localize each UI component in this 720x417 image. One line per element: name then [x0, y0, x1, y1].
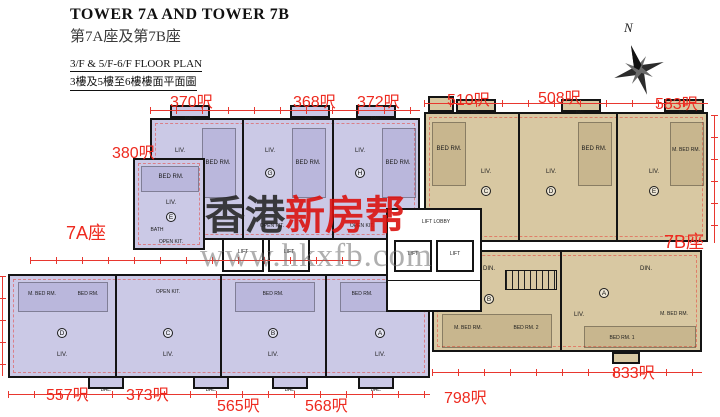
room-label-bed1: BED RM. 1 [609, 336, 634, 341]
tower-label-7a: 7A座 [66, 219, 106, 245]
area-label-368: 368呎 [293, 88, 336, 112]
bedroom-zone [584, 326, 696, 348]
lift-lobby-label: LIFT LOBBY [422, 220, 450, 225]
room-label-liv: LIV. [355, 148, 365, 154]
area-label-568: 568呎 [305, 392, 348, 416]
area-label-370: 370呎 [170, 88, 213, 112]
room-label-bed: BED RM. [205, 160, 230, 166]
unit-divider [560, 252, 562, 350]
balcony: BAL. [193, 376, 229, 389]
room-label-bath: BATH [151, 228, 164, 233]
unit-letter: C [481, 186, 491, 196]
unit-divider [616, 114, 618, 240]
unit-divider [325, 276, 327, 376]
room-label-din: DIN. [483, 266, 495, 272]
room-label-bal: BAL. [185, 116, 196, 122]
unit-divider [115, 276, 117, 376]
floor-plan-page: TOWER 7A AND TOWER 7B 第7A座及第7B座 3/F & 5/… [0, 0, 720, 417]
dimension-line [432, 372, 702, 373]
area-label-510: 510呎 [447, 86, 490, 110]
room-label-liv: LIV. [574, 312, 584, 318]
room-label-liv: LIV. [375, 352, 385, 358]
unit-letter: B [484, 294, 494, 304]
unit-letter: G [265, 168, 275, 178]
area-label-508: 508呎 [538, 84, 581, 108]
unit-letter: E [649, 186, 659, 196]
watermark-url: www.hkxfb.com [200, 238, 433, 275]
room-label-mbed: M. BED RM. [672, 148, 700, 153]
room-label-liv: LIV. [175, 148, 185, 154]
room-label-bed: BED RM. [385, 160, 410, 166]
dimension-line [2, 276, 3, 376]
core-partition [388, 280, 480, 281]
area-label-583: 583呎 [655, 90, 698, 114]
lift-label: LIFT [450, 251, 460, 257]
bedroom-zone [235, 282, 315, 312]
compass-rose-icon [608, 22, 670, 100]
room-label-bal: BAL. [576, 110, 587, 116]
room-label-bal: BAL. [305, 116, 316, 122]
unit-divider [518, 114, 520, 240]
staircase [505, 270, 557, 290]
balcony: BAL. [272, 376, 308, 389]
room-label-open-kit: OPEN KIT. [159, 240, 183, 245]
unit-divider [220, 276, 222, 376]
bedroom-zone [578, 122, 612, 186]
room-label-bed: BED RM. [352, 292, 373, 297]
room-label-liv: LIV. [265, 148, 275, 154]
dimension-line [714, 115, 715, 243]
room-label-liv: LIV. [649, 169, 659, 175]
tower-7a-lower-wing: M. BED RM. BED RM. D LIV. OPEN KIT. C LI… [8, 274, 430, 378]
room-label-din: DIN. [640, 266, 652, 272]
room-label-bal: BAL. [371, 116, 382, 122]
watermark-brand-red: 新房帮 [285, 193, 405, 238]
unit-letter: D [546, 186, 556, 196]
room-label-bed: BED RM. [78, 292, 99, 297]
unit-letter: A [375, 328, 385, 338]
page-title-chinese: 第7A座及第7B座 [70, 25, 181, 46]
room-label-bed: BED RM. [295, 160, 320, 166]
room-label-bed: BED RM. [436, 146, 461, 152]
unit-letter: E [166, 212, 176, 222]
room-label-liv: LIV. [166, 200, 176, 206]
unit-letter: D [57, 328, 67, 338]
balcony: BAL. [358, 376, 394, 389]
area-label-557: 557呎 [46, 381, 89, 405]
area-label-565: 565呎 [217, 392, 260, 416]
unit-letter: A [599, 288, 609, 298]
area-label-833: 833呎 [612, 359, 655, 383]
page-title: TOWER 7A AND TOWER 7B [70, 6, 289, 24]
tower-7a-unit-e: BED RM. LIV. E BATH OPEN KIT. [133, 158, 205, 250]
room-label-mbed: M. BED RM. [660, 312, 688, 317]
compass-icon: N [608, 22, 670, 100]
compass-north-label: N [624, 20, 633, 36]
bedroom-zone [442, 314, 552, 348]
room-label-bed: BED RM. [263, 292, 284, 297]
room-label-liv: LIV. [57, 352, 67, 358]
room-label-liv: LIV. [546, 169, 556, 175]
bedroom-zone [670, 122, 704, 186]
room-label-mbed: M. BED RM. [454, 326, 482, 331]
area-label-380: 380呎 [112, 139, 155, 163]
room-label-mbed: M. BED RM. [28, 292, 56, 297]
room-label-bal: BAL. [471, 110, 482, 116]
room-label-liv: LIV. [163, 352, 173, 358]
room-label-open-kit: OPEN KIT. [156, 290, 180, 295]
balcony: BAL. [88, 376, 124, 389]
unit-letter: B [268, 328, 278, 338]
watermark-brand-black: 香港 [205, 193, 285, 238]
area-label-798: 798呎 [444, 384, 487, 408]
tower-label-7b: 7B座 [664, 228, 704, 254]
bedroom-zone [432, 122, 466, 186]
lift-shaft: LIFT [436, 240, 474, 272]
plan-subtitle: 3/F & 5/F-6/F FLOOR PLAN [70, 58, 202, 72]
room-label-bed: BED RM. [158, 174, 183, 180]
bedroom-zone [18, 282, 108, 312]
room-label-bed: BED RM. [581, 146, 606, 152]
area-label-373: 373呎 [126, 381, 169, 405]
unit-letter: C [163, 328, 173, 338]
room-label-liv: LIV. [481, 169, 491, 175]
room-label-bed2: BED RM. 2 [513, 326, 538, 331]
room-label-liv: LIV. [268, 352, 278, 358]
area-label-372: 372呎 [357, 88, 400, 112]
watermark-brand: 香港新房帮 [205, 196, 405, 236]
unit-letter: H [355, 168, 365, 178]
